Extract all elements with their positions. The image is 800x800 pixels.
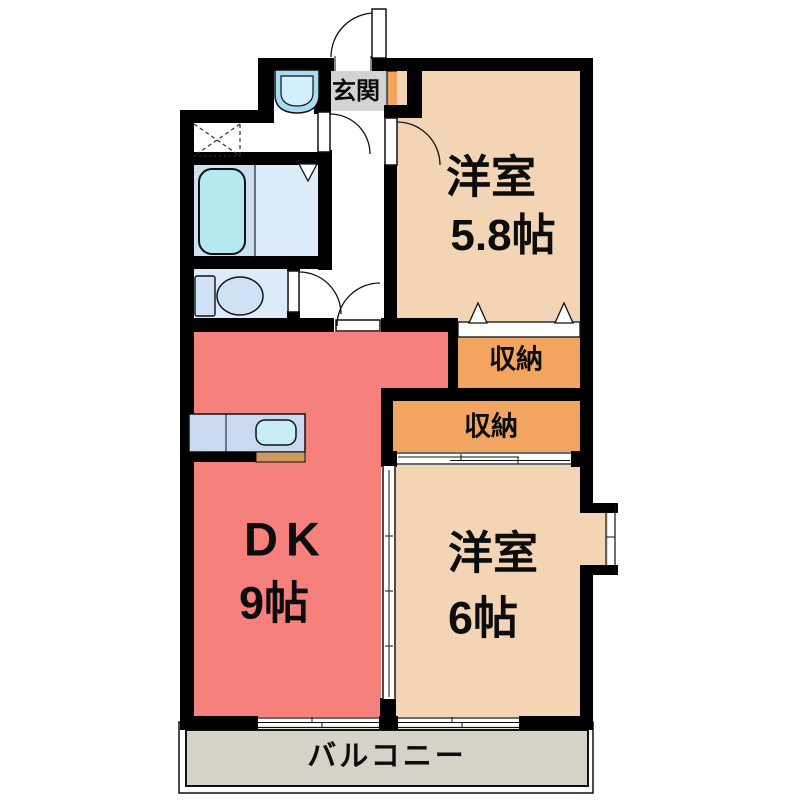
wall [180, 110, 274, 123]
wash-basin [281, 76, 313, 106]
toilet-door-arc [299, 272, 341, 314]
washroom-door-leaf [318, 112, 330, 152]
room1-door-leaf [385, 118, 397, 165]
kitchen-counter-base [189, 452, 256, 462]
bathtub [199, 169, 245, 254]
label-dk-size: 9帖 [239, 581, 309, 626]
wall [379, 716, 398, 730]
entrance-door-leaf [372, 9, 386, 58]
wall [180, 152, 332, 165]
wall [381, 401, 393, 453]
wall [381, 451, 397, 467]
bay-window-floor [580, 513, 608, 565]
label-balcony: バルコニー [307, 743, 466, 772]
wall [372, 58, 593, 71]
closet-folding-door [458, 322, 580, 337]
wall [287, 256, 300, 271]
floorplan: 玄関 洋室 5.8帖 収納 収納 DK 9帖 洋室 6帖 バルコニー [0, 0, 800, 800]
label-western-room-1-size: 5.8帖 [450, 214, 555, 258]
entrance-threshold [334, 56, 372, 71]
label-western-room-2: 洋室 [448, 531, 538, 576]
entrance-door-arc [331, 13, 375, 57]
label-storage-1: 収納 [489, 347, 543, 374]
label-entrance: 玄関 [332, 80, 380, 104]
wall [180, 318, 334, 332]
wall [519, 716, 593, 730]
wall [381, 318, 458, 332]
label-western-room-1: 洋室 [446, 155, 536, 200]
dk-door-leaf [336, 320, 380, 331]
wall [580, 503, 618, 513]
western-room-2-floor [394, 464, 580, 718]
label-dk: DK [244, 516, 328, 563]
wall [384, 164, 397, 320]
wall [384, 105, 422, 118]
wall [448, 332, 458, 390]
wall [180, 716, 258, 730]
washroom-door-arc [330, 114, 370, 154]
wall [580, 566, 593, 730]
wall [571, 451, 593, 467]
closet-sliding-door [397, 452, 571, 465]
toilet-bowl [217, 277, 263, 315]
floorplan-drawing [0, 0, 800, 800]
washing-machine-space [194, 124, 240, 156]
kitchen-counter-edge [256, 452, 305, 462]
kitchen-sink [256, 420, 296, 445]
wall [580, 58, 593, 512]
label-storage-2: 収納 [464, 414, 518, 441]
wall [318, 150, 332, 270]
wall [580, 565, 618, 575]
wall [180, 256, 332, 269]
wall [381, 388, 593, 401]
label-western-room-2-size: 6帖 [448, 596, 518, 641]
toilet-door-leaf [288, 271, 299, 312]
toilet-tank [195, 276, 215, 316]
